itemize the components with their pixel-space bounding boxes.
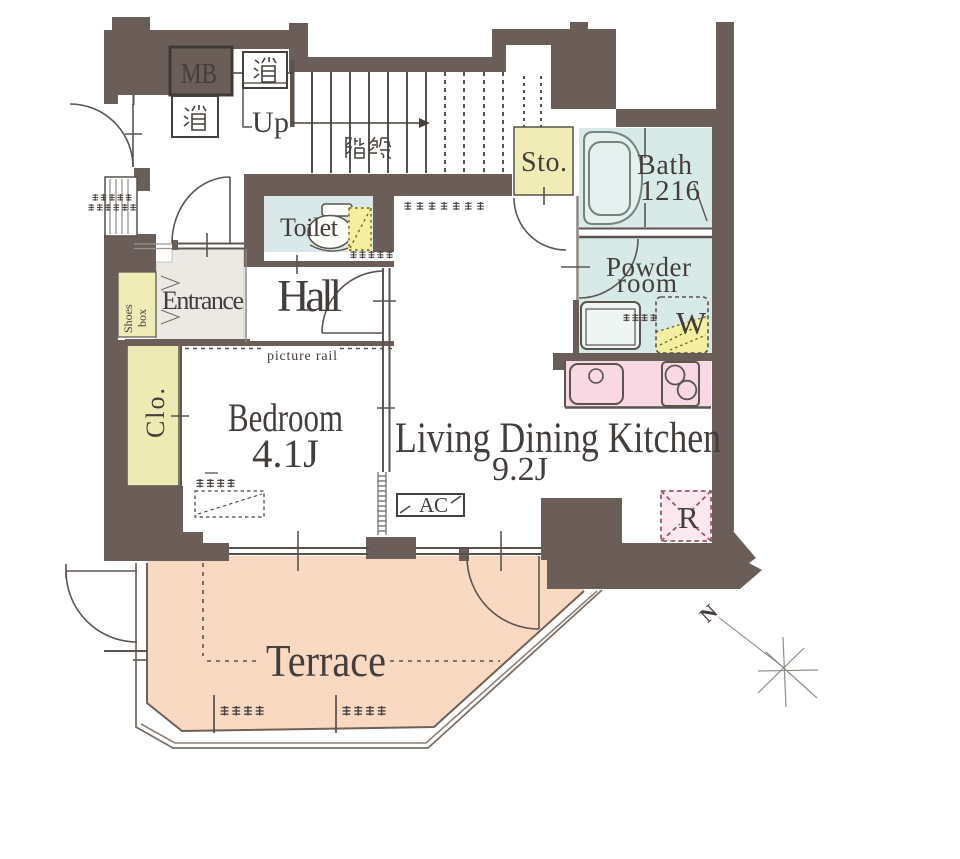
svg-text:Toilet: Toilet xyxy=(280,213,339,242)
svg-text:MB: MB xyxy=(181,58,217,90)
svg-text:room: room xyxy=(617,268,677,298)
svg-text:Living Dining Kitchen: Living Dining Kitchen xyxy=(395,415,721,462)
svg-text:AC: AC xyxy=(419,493,448,517)
svg-text:4.1J: 4.1J xyxy=(252,431,319,476)
svg-text:Sto.: Sto. xyxy=(521,147,567,178)
svg-text:Shoes: Shoes xyxy=(121,304,135,333)
svg-text:Hall: Hall xyxy=(277,271,342,321)
svg-text:Up: Up xyxy=(252,106,289,139)
svg-text:picture rail: picture rail xyxy=(267,349,337,364)
svg-text:box: box xyxy=(135,309,149,327)
svg-text:9.2J: 9.2J xyxy=(492,451,548,488)
svg-text:Entrance: Entrance xyxy=(162,286,244,315)
svg-text:Terrace: Terrace xyxy=(266,636,386,686)
svg-text:R: R xyxy=(678,500,699,535)
svg-text:W: W xyxy=(676,305,707,341)
svg-text:1216: 1216 xyxy=(640,175,700,207)
